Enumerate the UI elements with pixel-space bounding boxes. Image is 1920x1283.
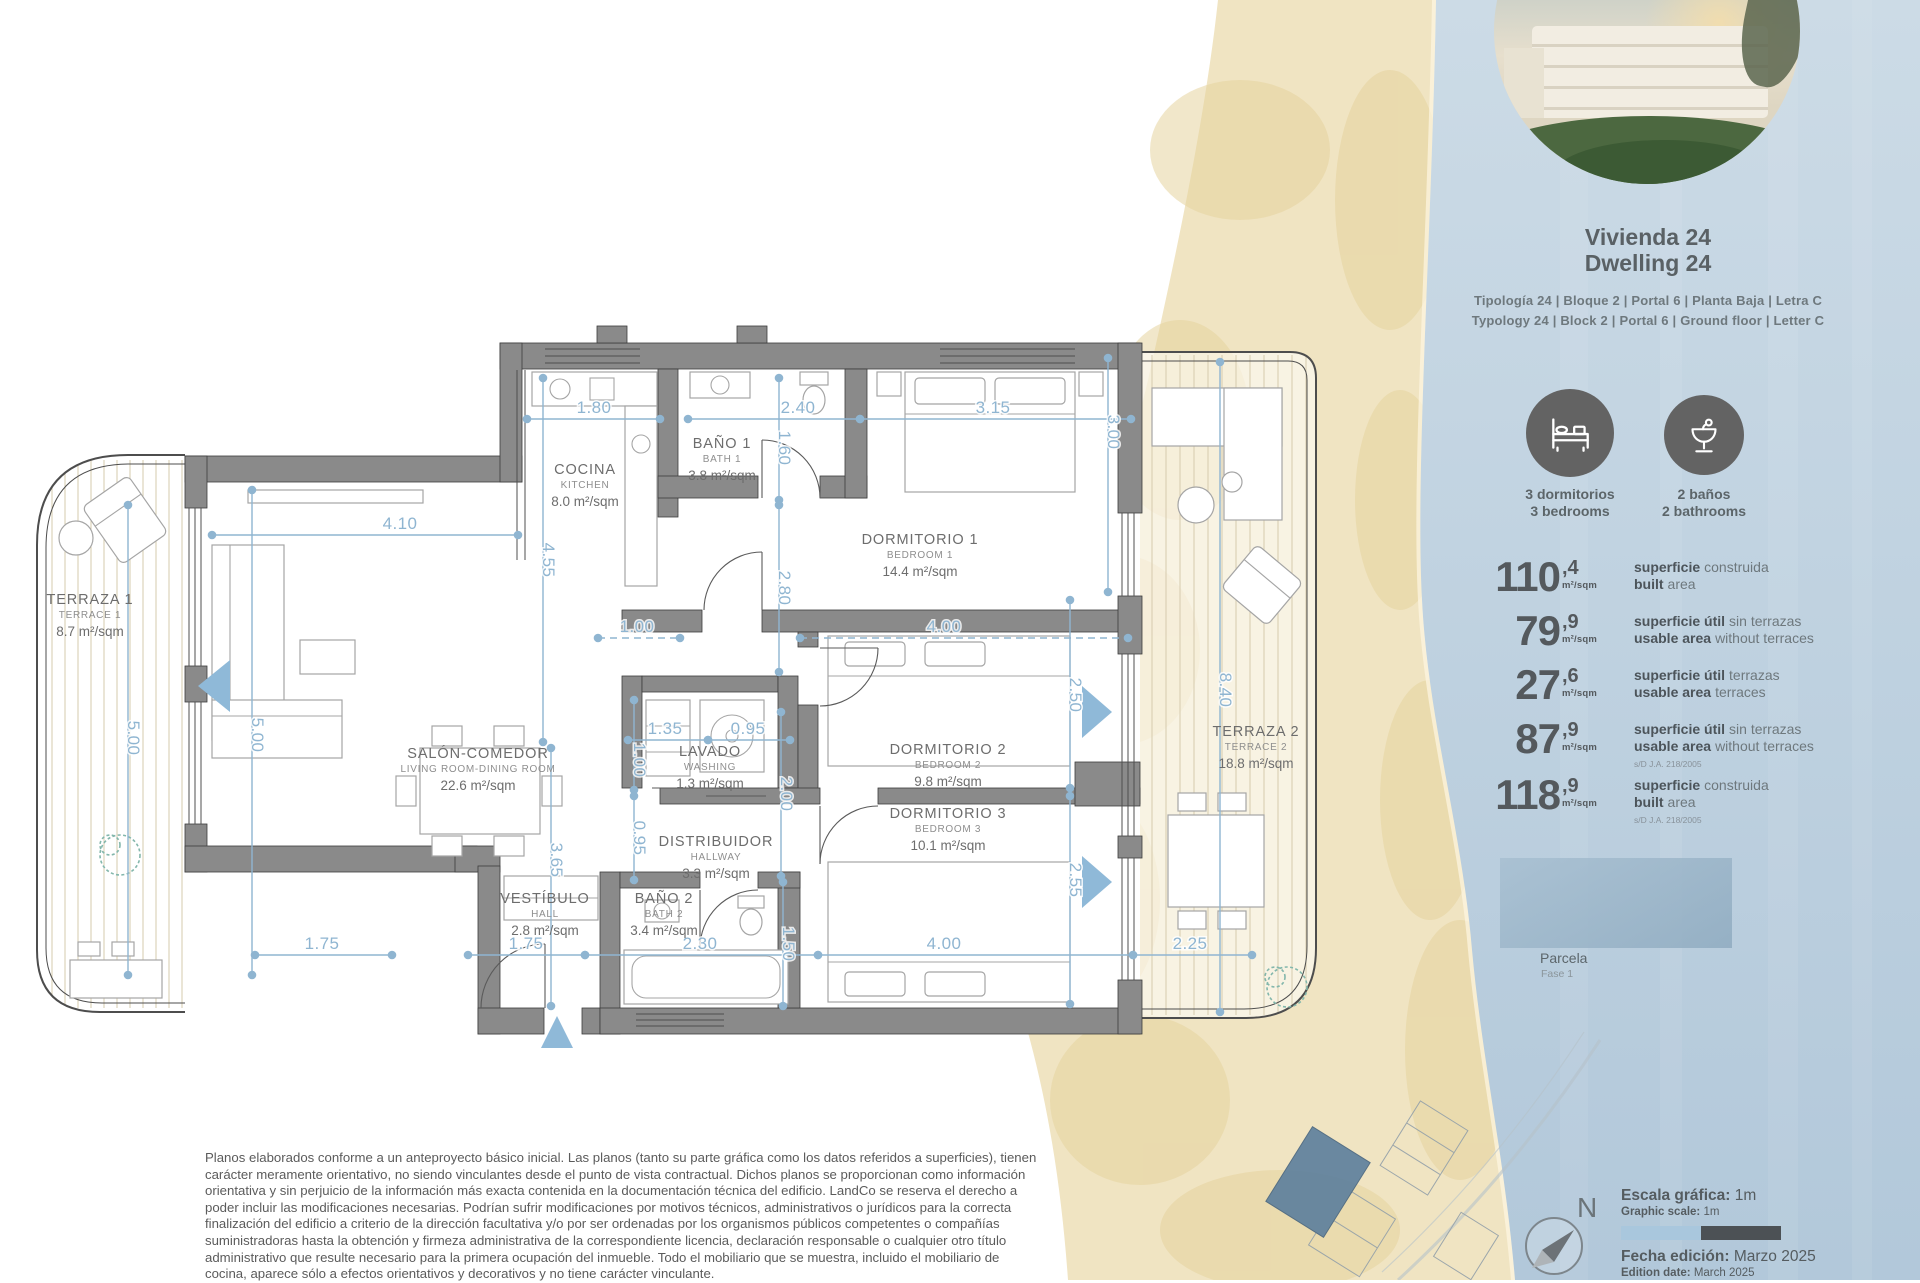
edition-date-es: Fecha edición: Marzo 2025 bbox=[1621, 1248, 1816, 1266]
room-name: TERRAZA 2 bbox=[1212, 724, 1299, 740]
floor-plan: 1.802.403.154.101.004.001.350.951.751.75… bbox=[37, 326, 1316, 1048]
room-name: COCINA bbox=[554, 462, 616, 478]
dimension-label: 2.25 bbox=[1173, 934, 1208, 953]
room-name: DORMITORIO 2 bbox=[890, 742, 1007, 758]
room-name: DORMITORIO 3 bbox=[890, 806, 1007, 822]
room-area: 9.8 m²/sqm bbox=[914, 774, 982, 789]
room-name-en: BATH 1 bbox=[703, 454, 741, 465]
room-name-en: LIVING ROOM-DINING ROOM bbox=[401, 764, 556, 775]
room-name-en: BEDROOM 1 bbox=[887, 550, 953, 561]
dimension-label: 3.00 bbox=[1104, 415, 1123, 450]
room-name: BAÑO 2 bbox=[635, 890, 694, 907]
scale-bar bbox=[1621, 1226, 1781, 1240]
unit-title-en: Dwelling 24 bbox=[1430, 250, 1866, 276]
room-name: VESTÍBULO bbox=[500, 890, 590, 907]
dimension-label: 1.35 bbox=[648, 719, 683, 738]
dimension-label: 1.50 bbox=[779, 927, 798, 962]
dimension-label: 1.00 bbox=[630, 743, 649, 778]
room-name-en: HALLWAY bbox=[691, 852, 742, 863]
bed-icon bbox=[1545, 408, 1595, 458]
dimension-label: 5.00 bbox=[124, 721, 143, 756]
dimension-label: 4.10 bbox=[383, 514, 418, 533]
room-name-en: TERRACE 2 bbox=[1225, 742, 1287, 753]
stat-built-area: 110 ,4m²/sqm superficieconstruida builta… bbox=[1398, 556, 1903, 610]
dimension-label: 2.50 bbox=[1066, 678, 1085, 713]
building-facade bbox=[1532, 26, 1768, 118]
room-name-en: WASHING bbox=[684, 762, 736, 773]
dimension-label: 8.40 bbox=[1216, 673, 1235, 708]
room-name-en: KITCHEN bbox=[561, 480, 610, 491]
room-area: 8.0 m²/sqm bbox=[551, 494, 619, 509]
dimension-label: 0.95 bbox=[731, 719, 766, 738]
dimension-label: 1.60 bbox=[775, 431, 794, 466]
dimension-label: 2.00 bbox=[777, 777, 796, 812]
stat-terrace-area: 27 ,6m²/sqm superficie útilterrazas usab… bbox=[1398, 664, 1903, 718]
bedrooms-feature bbox=[1526, 389, 1614, 477]
building-photo bbox=[1494, 0, 1800, 184]
dimension-label: 4.00 bbox=[927, 934, 962, 953]
north-label: N bbox=[1577, 1192, 1597, 1224]
bathrooms-feature bbox=[1664, 395, 1744, 475]
stat-usable-area: 79 ,9m²/sqm superficie útilsin terrazas … bbox=[1398, 610, 1903, 664]
parcela-sublabel: Fase 1 bbox=[1541, 968, 1573, 980]
unit-spec-en: Typology 24 | Block 2 | Portal 6 | Groun… bbox=[1386, 311, 1910, 331]
legal-disclaimer: Planos elaborados conforme a un anteproy… bbox=[205, 1150, 1041, 1283]
dimension-label: 5.00 bbox=[248, 718, 267, 753]
dimension-label: 1.80 bbox=[577, 398, 612, 417]
dimension-label: 1.00 bbox=[620, 617, 655, 636]
unit-spec-es: Tipología 24 | Bloque 2 | Portal 6 | Pla… bbox=[1386, 291, 1910, 311]
room-area: 18.8 m²/sqm bbox=[1218, 756, 1293, 771]
stat-usable-area-ja: 87 ,9m²/sqm superficie útilsin terrazas … bbox=[1398, 718, 1903, 772]
room-name: LAVADO bbox=[679, 744, 741, 760]
scale-label-en: Graphic scale: 1m bbox=[1621, 1206, 1719, 1218]
dimension-label: 2.55 bbox=[1066, 863, 1085, 898]
room-area: 10.1 m²/sqm bbox=[910, 838, 985, 853]
basin-icon bbox=[1681, 412, 1727, 458]
room-name-en: BEDROOM 2 bbox=[915, 760, 981, 771]
edition-date-en: Edition date: March 2025 bbox=[1621, 1267, 1755, 1279]
room-area: 3.3 m²/sqm bbox=[682, 866, 750, 881]
room-name: DORMITORIO 1 bbox=[862, 532, 979, 548]
room-name: DISTRIBUIDOR bbox=[659, 834, 774, 850]
dimension-label: 2.80 bbox=[775, 571, 794, 606]
dimension-label: 3.65 bbox=[547, 843, 566, 878]
dimension-label: 1.75 bbox=[305, 934, 340, 953]
room-area: 8.7 m²/sqm bbox=[56, 624, 124, 639]
dimension-label: 2.40 bbox=[781, 398, 816, 417]
room-area: 1.3 m²/sqm bbox=[676, 776, 744, 791]
room-name: SALÓN-COMEDOR bbox=[407, 745, 548, 762]
room-area: 14.4 m²/sqm bbox=[882, 564, 957, 579]
scale-label-es: Escala gráfica: 1m bbox=[1621, 1187, 1756, 1205]
room-area: 3.8 m²/sqm bbox=[688, 468, 756, 483]
dimension-label: 0.95 bbox=[630, 821, 649, 856]
room-name-en: BEDROOM 3 bbox=[915, 824, 981, 835]
unit-title-es: Vivienda 24 bbox=[1430, 224, 1866, 250]
dimension-label: 3.15 bbox=[976, 398, 1011, 417]
dimension-label: 4.00 bbox=[927, 617, 962, 636]
room-name: BAÑO 1 bbox=[693, 435, 752, 452]
room-area: 22.6 m²/sqm bbox=[440, 778, 515, 793]
room-area: 2.8 m²/sqm bbox=[511, 923, 579, 938]
room-name-en: HALL bbox=[531, 909, 559, 920]
room-name-en: TERRACE 1 bbox=[59, 610, 121, 621]
room-area: 3.4 m²/sqm bbox=[630, 923, 698, 938]
stat-built-area-ja: 118 ,9m²/sqm superficieconstruida builta… bbox=[1398, 774, 1903, 828]
unit-spec: Tipología 24 | Bloque 2 | Portal 6 | Pla… bbox=[1386, 291, 1910, 331]
parcela-thumbnail bbox=[1500, 858, 1732, 948]
room-name: TERRAZA 1 bbox=[46, 592, 133, 608]
unit-title: Vivienda 24 Dwelling 24 bbox=[1430, 224, 1866, 276]
parcela-label: Parcela bbox=[1540, 950, 1587, 966]
dimension-label: 4.55 bbox=[539, 543, 558, 578]
room-name-en: BATH 2 bbox=[645, 909, 683, 920]
bathrooms-label: 2 baños 2 bathrooms bbox=[1614, 486, 1794, 520]
